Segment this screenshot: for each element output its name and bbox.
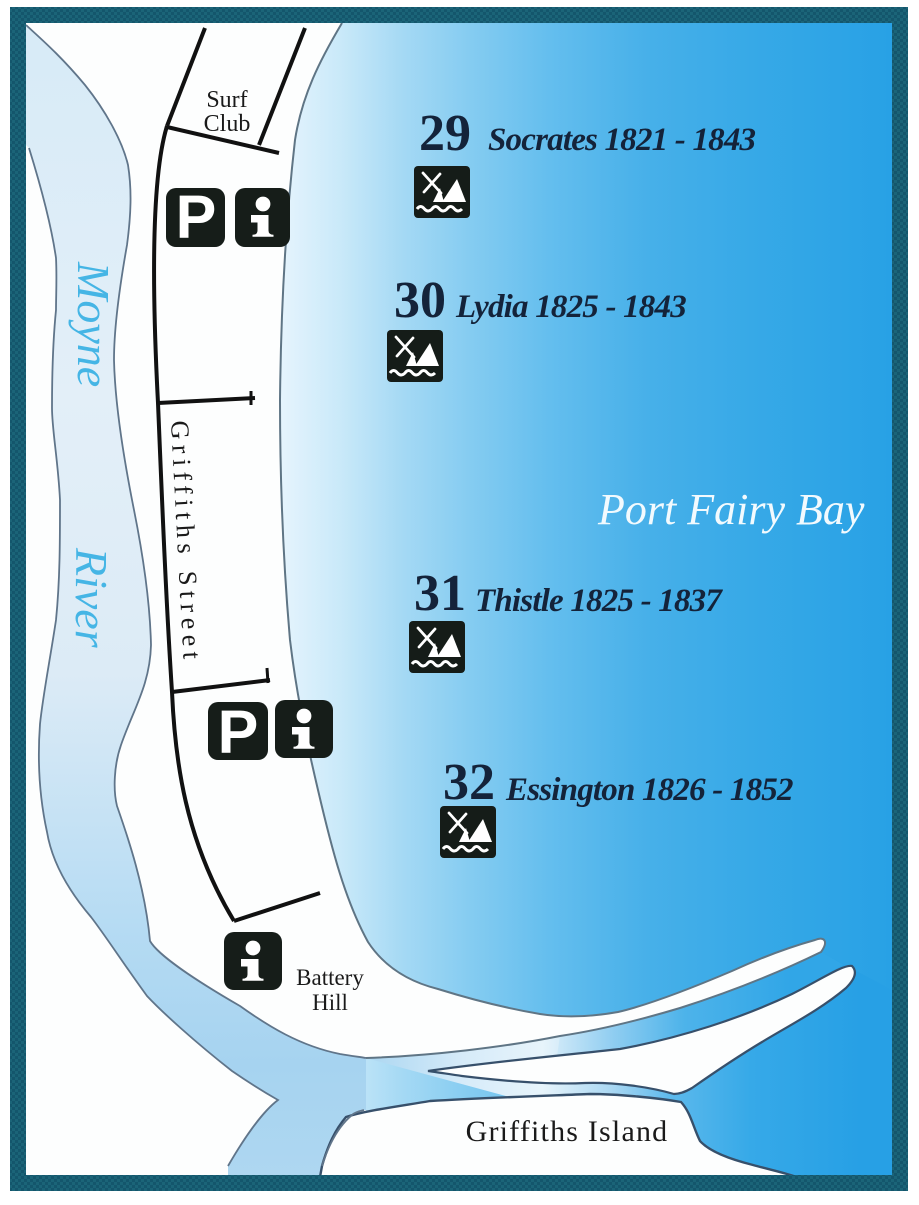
svg-text:Surf: Surf — [206, 87, 247, 113]
svg-text:29: 29 — [419, 105, 471, 162]
svg-text:Moyne: Moyne — [68, 261, 119, 387]
svg-text:31: 31 — [414, 565, 466, 622]
svg-text:Battery: Battery — [296, 965, 364, 990]
svg-text:Club: Club — [204, 111, 251, 137]
svg-text:32: 32 — [443, 754, 495, 811]
svg-text:Griffiths Island: Griffiths Island — [466, 1115, 669, 1148]
svg-text:Lydia 1825 - 1843: Lydia 1825 - 1843 — [455, 289, 686, 325]
svg-text:Hill: Hill — [312, 990, 348, 1015]
svg-text:Thistle 1825 - 1837: Thistle 1825 - 1837 — [475, 583, 723, 619]
svg-text:Socrates 1821 - 1843: Socrates 1821 - 1843 — [488, 122, 756, 158]
svg-text:Essington 1826 - 1852: Essington 1826 - 1852 — [505, 772, 793, 808]
svg-text:Port Fairy Bay: Port Fairy Bay — [597, 485, 865, 534]
svg-text:P: P — [218, 698, 259, 766]
svg-text:River: River — [66, 547, 117, 649]
svg-text:30: 30 — [394, 272, 446, 329]
svg-text:P: P — [176, 183, 217, 251]
